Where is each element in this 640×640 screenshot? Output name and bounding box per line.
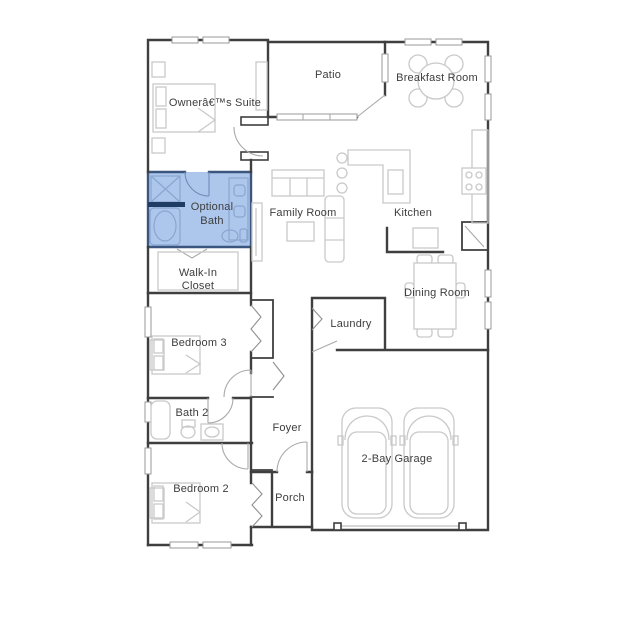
- room-label-bath2: Bath 2: [175, 407, 208, 419]
- bath-divider-bar: [148, 202, 185, 207]
- patio-door: [357, 95, 385, 117]
- room-label-family: Family Room: [270, 207, 337, 219]
- room-label-laundry: Laundry: [330, 318, 371, 330]
- floor-plan-page: Optional Bath: [0, 0, 640, 640]
- room-label-garage: 2-Bay Garage: [362, 453, 433, 465]
- stove: [462, 168, 486, 194]
- pantry-door: [465, 226, 484, 247]
- room-label-bedroom2: Bedroom 2: [173, 483, 229, 495]
- room-label-breakfast: Breakfast Room: [396, 72, 478, 84]
- room-label-porch: Porch: [275, 492, 305, 504]
- room-label-walk-in-1: Walk-In: [179, 267, 217, 279]
- bedroom2-closet-bifold: [252, 483, 262, 527]
- closet-opening: [177, 249, 207, 258]
- bedroom2-door: [222, 443, 248, 469]
- front-door: [277, 442, 307, 472]
- garage-entry-door: [312, 341, 337, 352]
- bath2-door: [208, 398, 233, 423]
- room-label-walk-in-2: Closet: [182, 280, 214, 292]
- floor-plan: Optional Bath: [0, 0, 640, 640]
- linen-closet-bifold: [273, 362, 284, 390]
- wall-stub: [241, 117, 268, 125]
- room-optional-bath: Optional Bath: [148, 172, 251, 247]
- room-label-kitchen: Kitchen: [394, 207, 432, 219]
- bedroom3-closet-bifold: [251, 305, 261, 352]
- wall-stub: [241, 152, 268, 160]
- room-labels: Ownerâ€™s Suite Patio Breakfast Room Fam…: [169, 69, 478, 504]
- room-label-patio: Patio: [315, 69, 341, 81]
- room-label-optional-bath-2: Bath: [200, 215, 223, 227]
- room-label-owners-suite: Ownerâ€™s Suite: [169, 97, 261, 109]
- laundry-bifold: [312, 308, 322, 330]
- room-label-optional-bath-1: Optional: [191, 201, 234, 213]
- room-label-dining: Dining Room: [404, 287, 470, 299]
- room-label-foyer: Foyer: [272, 422, 301, 434]
- kitchen-furniture: [337, 130, 488, 248]
- room-label-bedroom3: Bedroom 3: [171, 337, 227, 349]
- bedroom3-door: [224, 370, 251, 397]
